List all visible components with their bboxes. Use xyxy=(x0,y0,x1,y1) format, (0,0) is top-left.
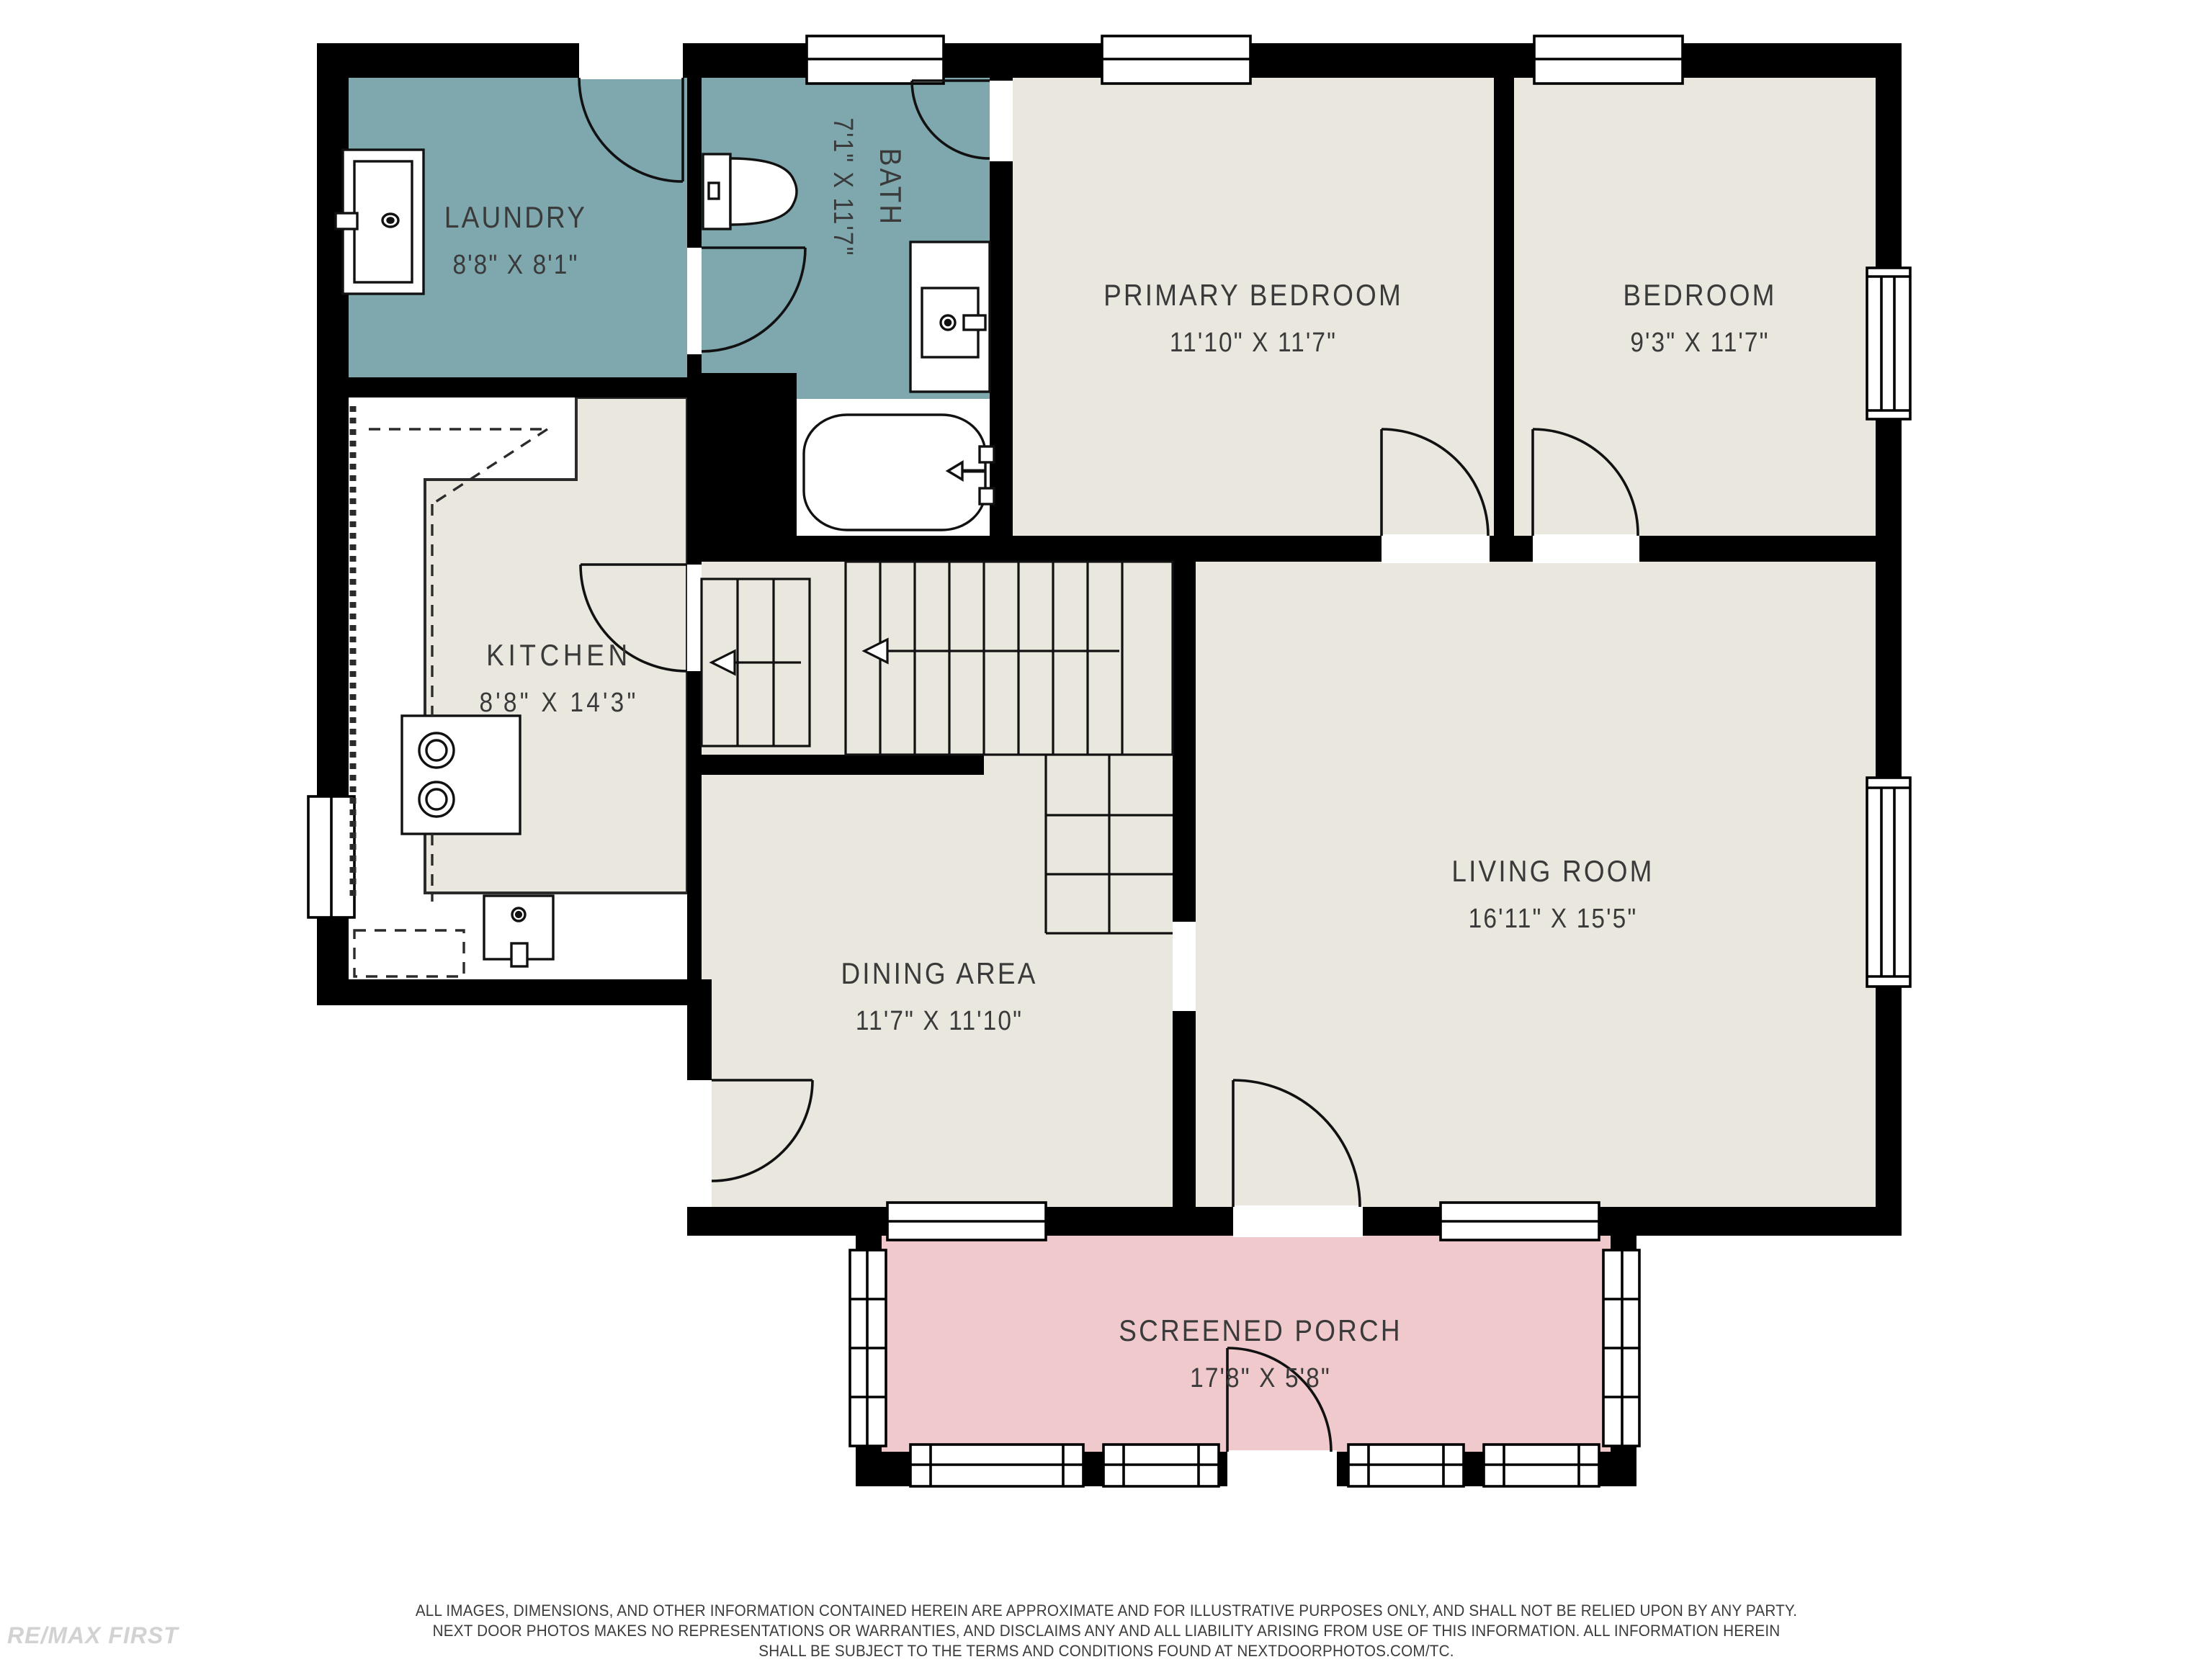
doorway xyxy=(687,248,702,354)
disclaimer-line: NEXT DOOR PHOTOS MAKES NO REPRESENTATION… xyxy=(66,1622,2146,1642)
doorway xyxy=(1382,534,1490,563)
window-primary-bedroom-top xyxy=(1102,36,1250,84)
floor-plan: LAUNDRY 8'8" X 8'1" BATH 7'1" X 11'7" PR… xyxy=(0,0,2212,1659)
room-name: SCREENED PORCH xyxy=(1119,1315,1402,1349)
doorway xyxy=(1233,1205,1363,1237)
doorway xyxy=(687,565,702,671)
window-bedroom-right xyxy=(1867,268,1910,419)
wall-segment xyxy=(317,377,689,397)
wall-segment xyxy=(697,755,984,775)
doorway xyxy=(687,1080,712,1207)
room-dims: 11'10" X 11'7" xyxy=(1103,328,1403,360)
room-dims: 7'1" X 11'7" xyxy=(825,117,857,256)
room-name: DINING AREA xyxy=(841,958,1037,992)
kitchen-sink-icon xyxy=(484,896,553,966)
wall-segment xyxy=(1173,1011,1196,1207)
wall-segment xyxy=(1494,78,1514,536)
label-kitchen: KITCHEN 8'8" X 14'3" xyxy=(479,639,638,720)
label-primary-bedroom: PRIMARY BEDROOM 11'10" X 11'7" xyxy=(1103,279,1403,360)
doorway xyxy=(990,81,1013,161)
room-dims: 8'8" X 8'1" xyxy=(444,251,587,282)
doorway xyxy=(579,42,683,79)
doorway xyxy=(1533,534,1639,563)
room-dims: 8'8" X 14'3" xyxy=(479,688,638,720)
room-name: PRIMARY BEDROOM xyxy=(1103,279,1403,314)
window-bath-top xyxy=(807,36,944,84)
disclaimer: ALL IMAGES, DIMENSIONS, AND OTHER INFORM… xyxy=(0,1602,2212,1662)
wall-segment xyxy=(687,536,1013,562)
room-name: BATH xyxy=(872,117,906,256)
vanity-sink-icon xyxy=(910,242,990,392)
stove-icon xyxy=(402,716,520,834)
room-name: BEDROOM xyxy=(1623,279,1776,314)
room-dims: 9'3" X 11'7" xyxy=(1623,328,1776,360)
window-dining-to-porch xyxy=(887,1203,1046,1240)
wall-segment xyxy=(317,979,707,1005)
porch-screen-window-right xyxy=(1603,1250,1639,1446)
room-dims: 16'11" X 15'5" xyxy=(1451,904,1654,936)
disclaimer-line: ALL IMAGES, DIMENSIONS, AND OTHER INFORM… xyxy=(66,1602,2146,1622)
room-name: LIVING ROOM xyxy=(1451,855,1654,890)
label-living-room: LIVING ROOM 16'11" X 15'5" xyxy=(1451,855,1654,936)
doorway xyxy=(1227,1450,1337,1488)
wall-segment xyxy=(1173,562,1196,922)
window-bedroom-top xyxy=(1534,36,1683,84)
label-bath: BATH 7'1" X 11'7" xyxy=(825,117,906,256)
window-living-to-porch xyxy=(1441,1203,1599,1240)
label-dining-area: DINING AREA 11'7" X 11'10" xyxy=(841,958,1037,1038)
wall-chimney-mass xyxy=(687,373,797,539)
bathtub-icon xyxy=(804,415,994,530)
hall-stairs-floor xyxy=(702,556,1173,755)
room-name: LAUNDRY xyxy=(444,202,587,236)
wall-segment xyxy=(1876,43,1902,1236)
laundry-sink-icon xyxy=(336,150,424,294)
window-living-room-right xyxy=(1867,778,1910,987)
label-bedroom: BEDROOM 9'3" X 11'7" xyxy=(1623,279,1776,360)
room-dims: 17'8" X 5'8" xyxy=(1119,1364,1402,1396)
floor-plan-drawing xyxy=(0,0,2212,1659)
watermark-remax-first: RE/MAX FIRST xyxy=(7,1625,179,1650)
label-laundry: LAUNDRY 8'8" X 8'1" xyxy=(444,202,587,282)
room-dims: 11'7" X 11'10" xyxy=(841,1007,1037,1038)
label-screened-porch: SCREENED PORCH 17'8" X 5'8" xyxy=(1119,1315,1402,1396)
room-name: KITCHEN xyxy=(479,639,638,674)
window-kitchen-left xyxy=(308,796,354,917)
porch-screen-window-left xyxy=(850,1250,886,1446)
